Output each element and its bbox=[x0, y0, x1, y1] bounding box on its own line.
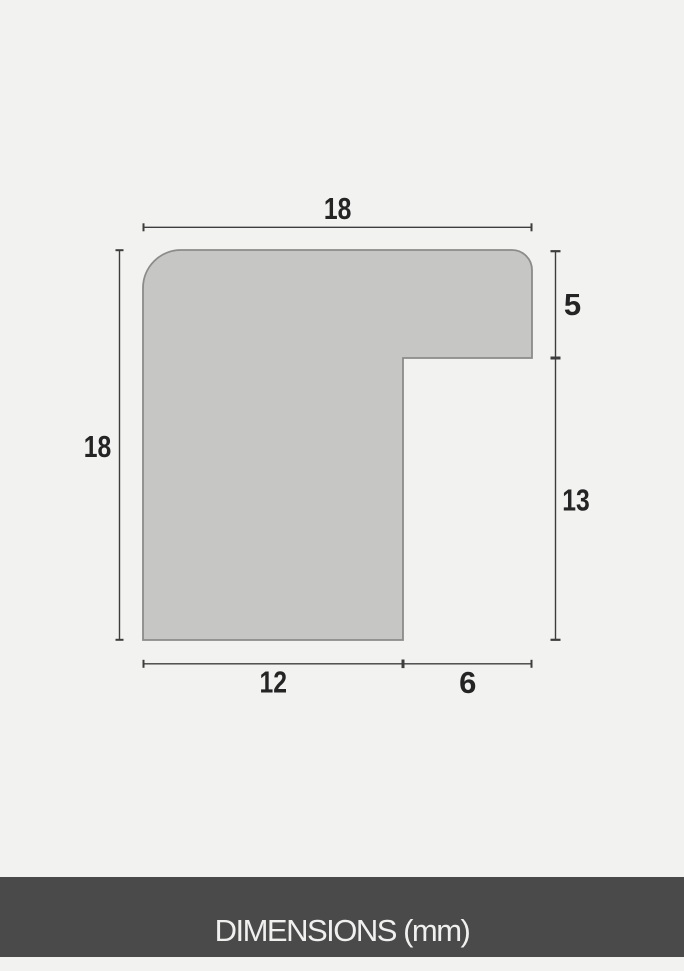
svg-text:6: 6 bbox=[459, 665, 476, 700]
svg-text:13: 13 bbox=[562, 482, 590, 517]
svg-text:18: 18 bbox=[324, 191, 352, 226]
svg-text:12: 12 bbox=[259, 664, 287, 699]
svg-text:18: 18 bbox=[84, 429, 112, 464]
svg-text:5: 5 bbox=[564, 287, 581, 322]
